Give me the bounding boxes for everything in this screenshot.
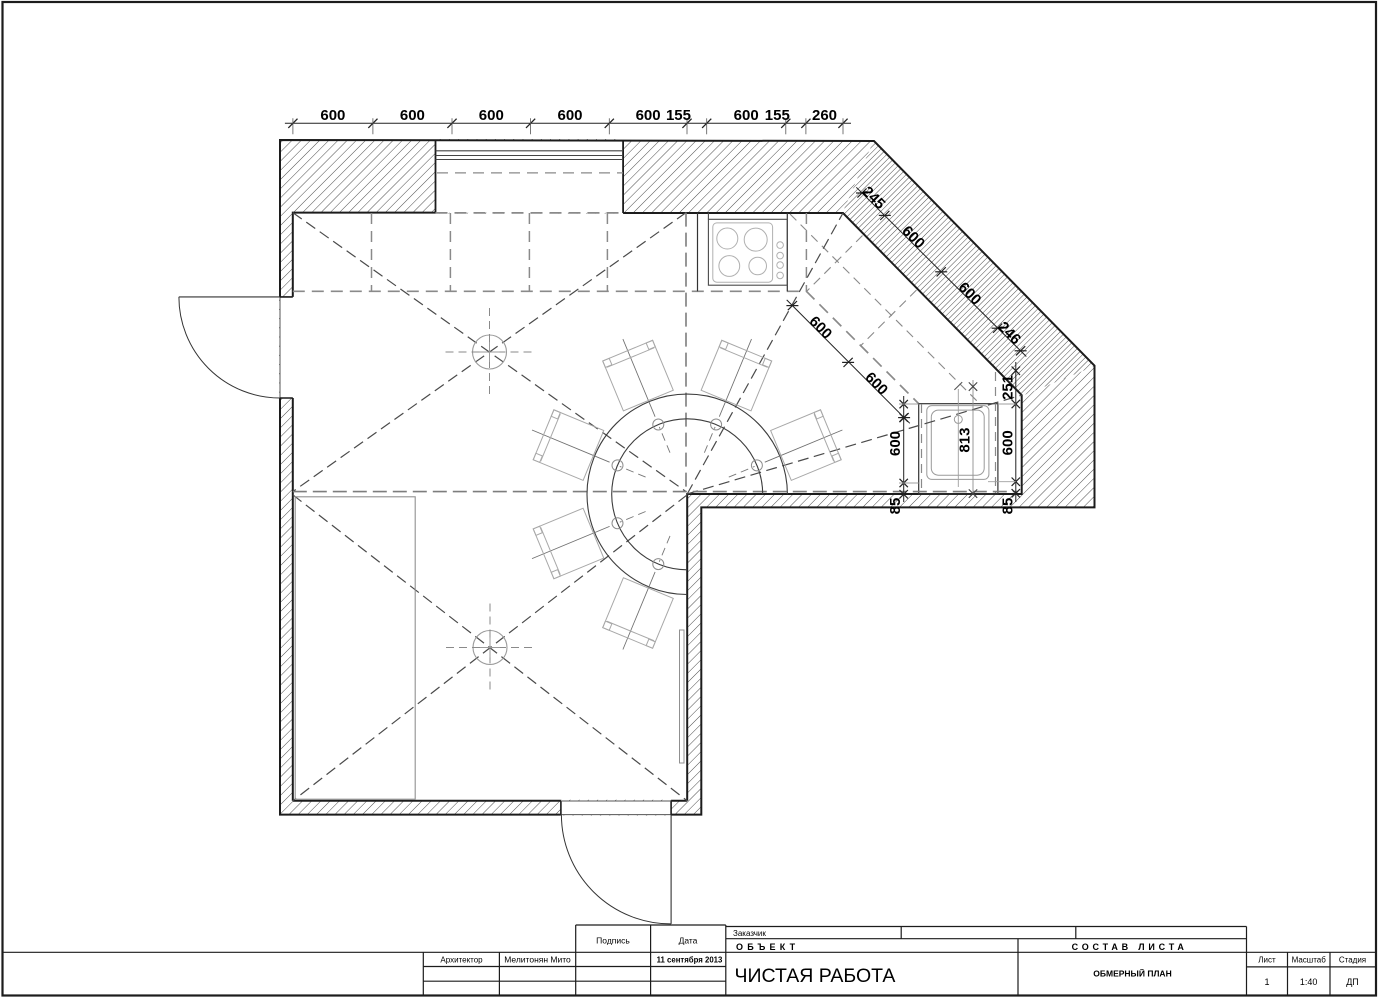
svg-text:251: 251 <box>999 375 1016 400</box>
svg-text:Подпись: Подпись <box>596 936 630 946</box>
svg-text:Мелитонян Мито: Мелитонян Мито <box>504 955 571 965</box>
svg-text:85: 85 <box>999 498 1016 515</box>
svg-text:155: 155 <box>765 107 790 124</box>
svg-text:СОСТАВ ЛИСТА: СОСТАВ ЛИСТА <box>1072 942 1188 952</box>
svg-text:Лист: Лист <box>1258 956 1276 965</box>
svg-text:1: 1 <box>1264 977 1269 987</box>
svg-text:ДП: ДП <box>1346 977 1359 987</box>
svg-text:260: 260 <box>812 107 837 124</box>
svg-text:85: 85 <box>887 498 904 515</box>
svg-text:600: 600 <box>636 107 661 124</box>
svg-text:Дата: Дата <box>679 936 698 946</box>
svg-text:600: 600 <box>557 107 582 124</box>
svg-text:ОБМЕРНЫЙ ПЛАН: ОБМЕРНЫЙ ПЛАН <box>1093 968 1171 979</box>
svg-text:600: 600 <box>887 431 904 456</box>
svg-text:Стадия: Стадия <box>1339 956 1366 965</box>
svg-text:155: 155 <box>666 107 691 124</box>
svg-text:ОБЪЕКТ: ОБЪЕКТ <box>736 942 799 952</box>
svg-text:ЧИСТАЯ РАБОТА: ЧИСТАЯ РАБОТА <box>735 965 896 987</box>
svg-text:600: 600 <box>479 107 504 124</box>
svg-text:1:40: 1:40 <box>1300 977 1318 987</box>
svg-text:11 сентября 2013: 11 сентября 2013 <box>657 956 723 965</box>
svg-text:600: 600 <box>320 107 345 124</box>
svg-text:Заказчик: Заказчик <box>733 929 766 938</box>
svg-text:600: 600 <box>999 430 1016 455</box>
svg-text:600: 600 <box>734 107 759 124</box>
svg-text:600: 600 <box>400 107 425 124</box>
svg-text:813: 813 <box>957 428 974 453</box>
svg-text:Масштаб: Масштаб <box>1292 956 1327 965</box>
svg-text:Архитектор: Архитектор <box>440 956 483 965</box>
